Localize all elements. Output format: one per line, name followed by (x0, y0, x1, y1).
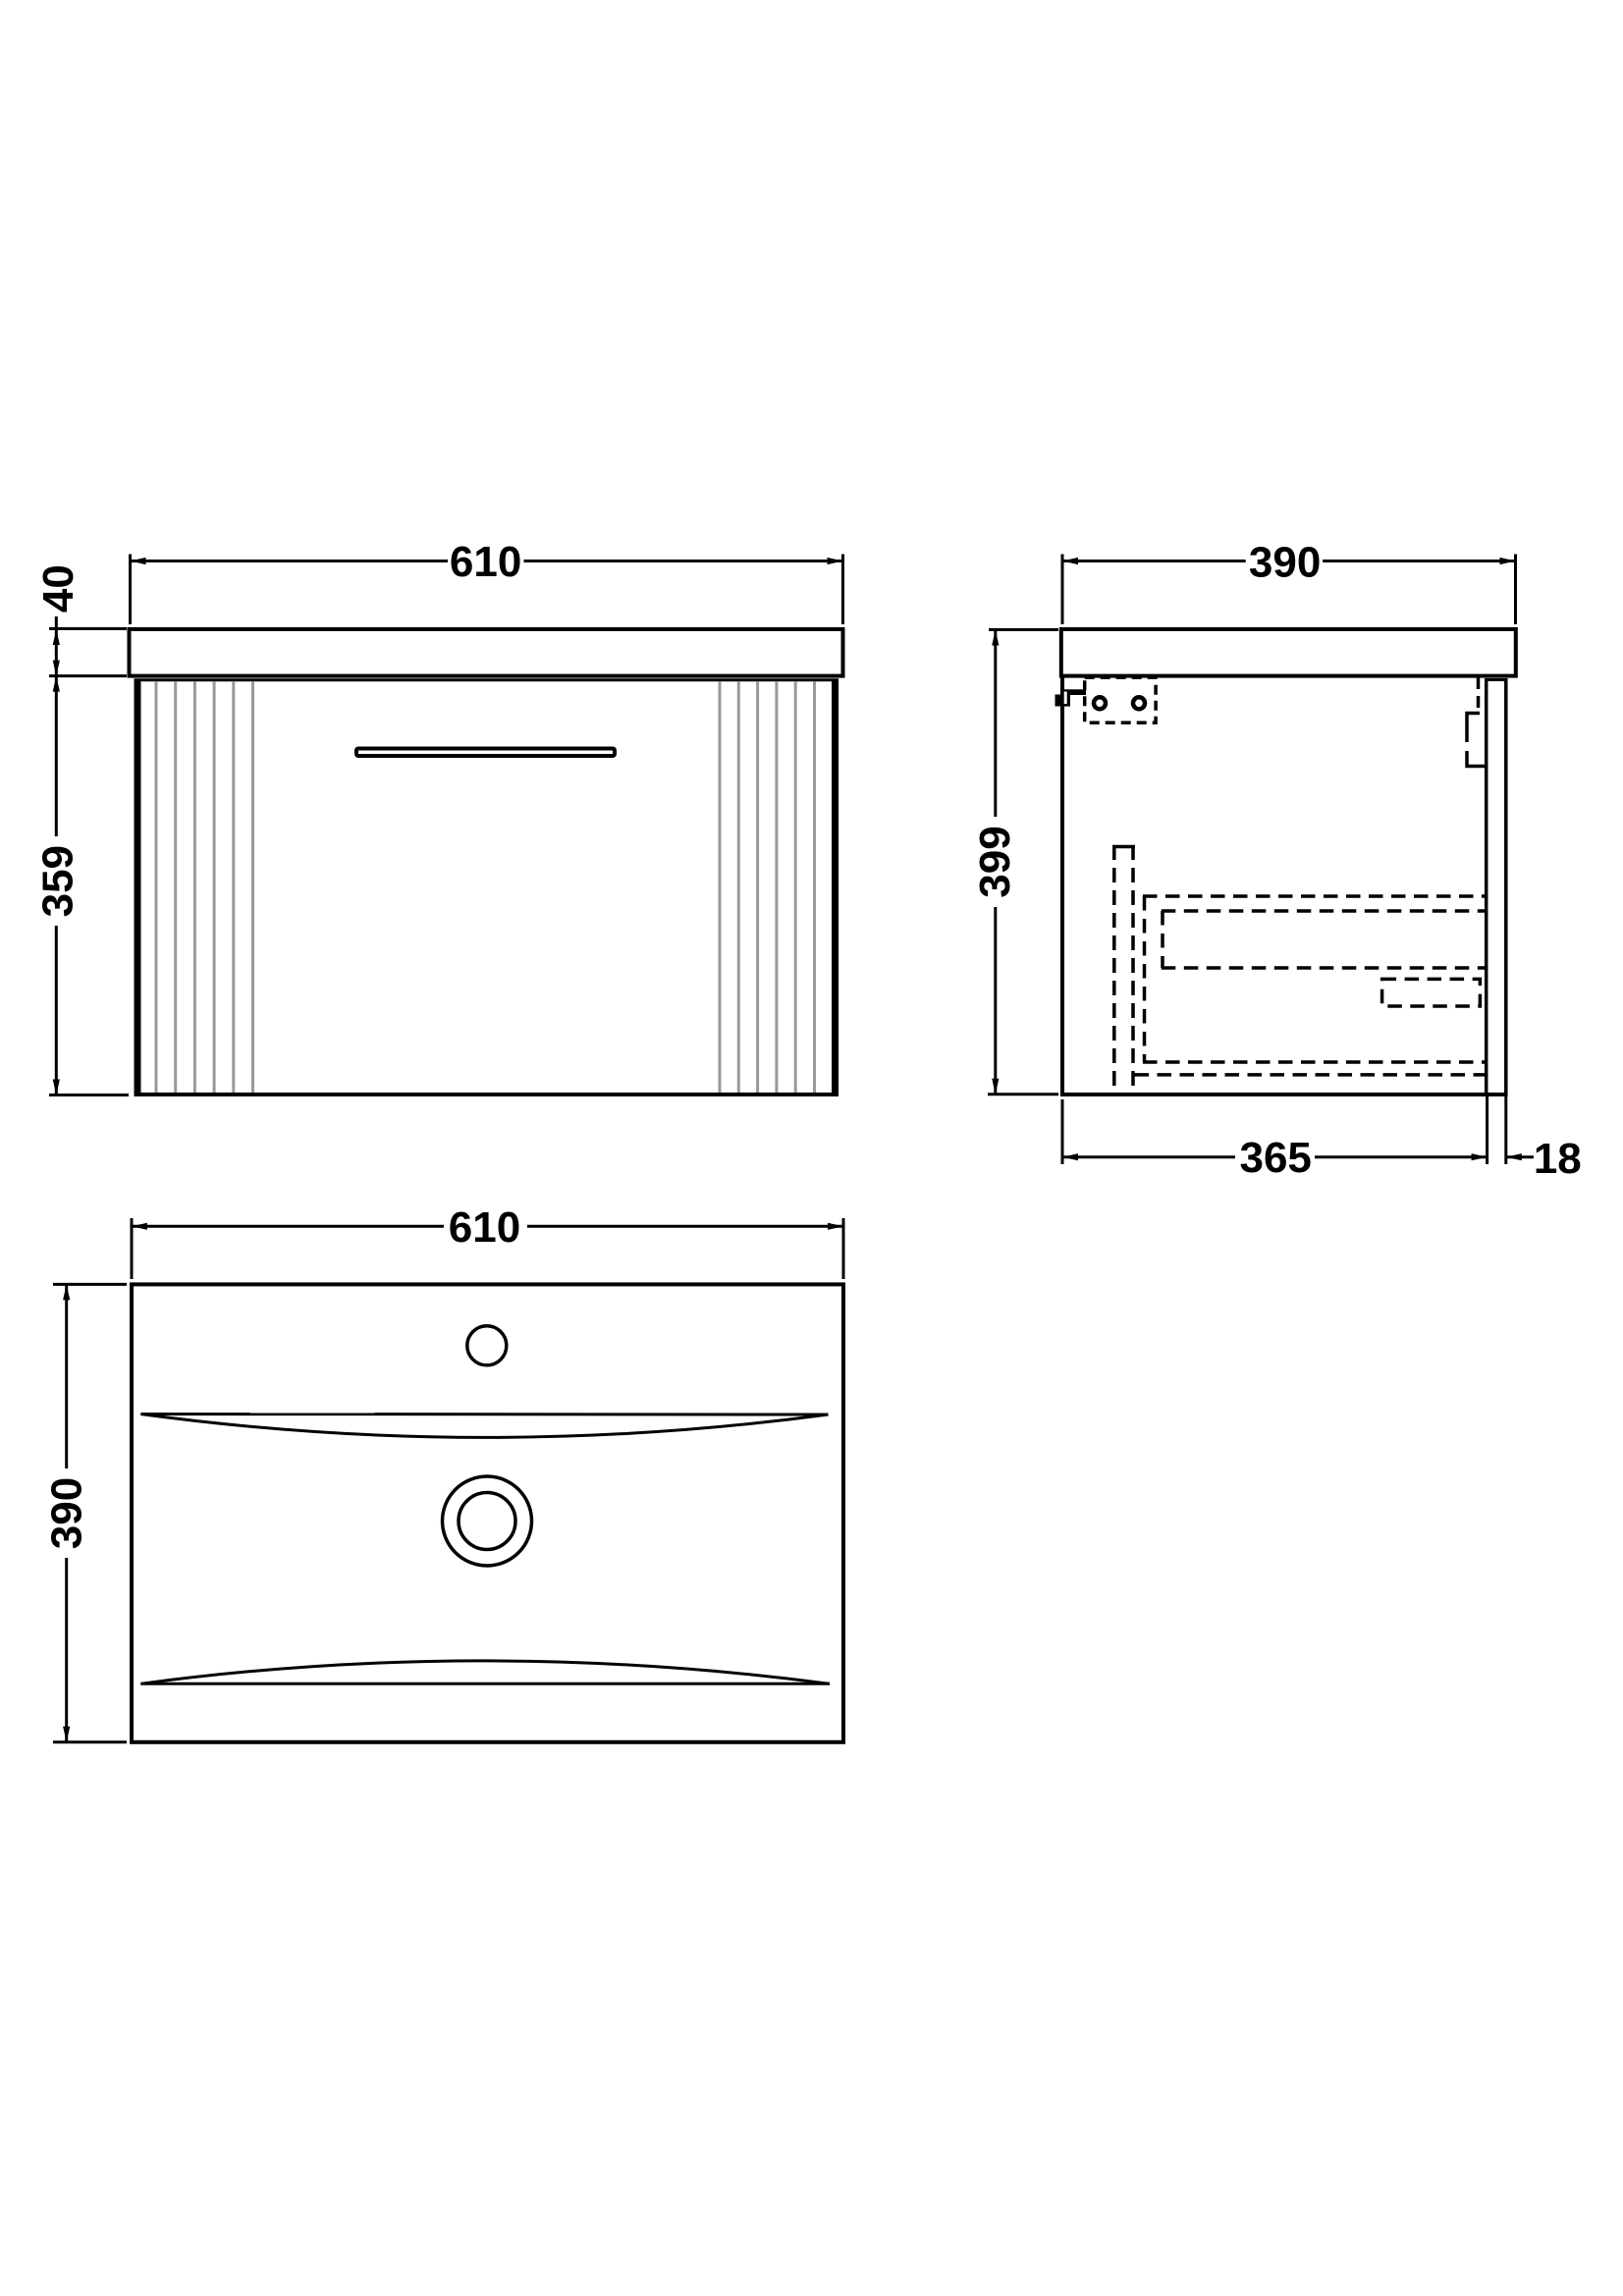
svg-text:365: 365 (1239, 1134, 1311, 1182)
svg-text:390: 390 (43, 1477, 91, 1549)
svg-text:18: 18 (1534, 1135, 1582, 1183)
svg-text:399: 399 (971, 826, 1019, 897)
svg-text:40: 40 (34, 564, 82, 613)
svg-text:359: 359 (33, 845, 81, 917)
svg-text:610: 610 (450, 538, 521, 586)
svg-text:610: 610 (449, 1203, 520, 1252)
svg-text:390: 390 (1249, 539, 1321, 587)
